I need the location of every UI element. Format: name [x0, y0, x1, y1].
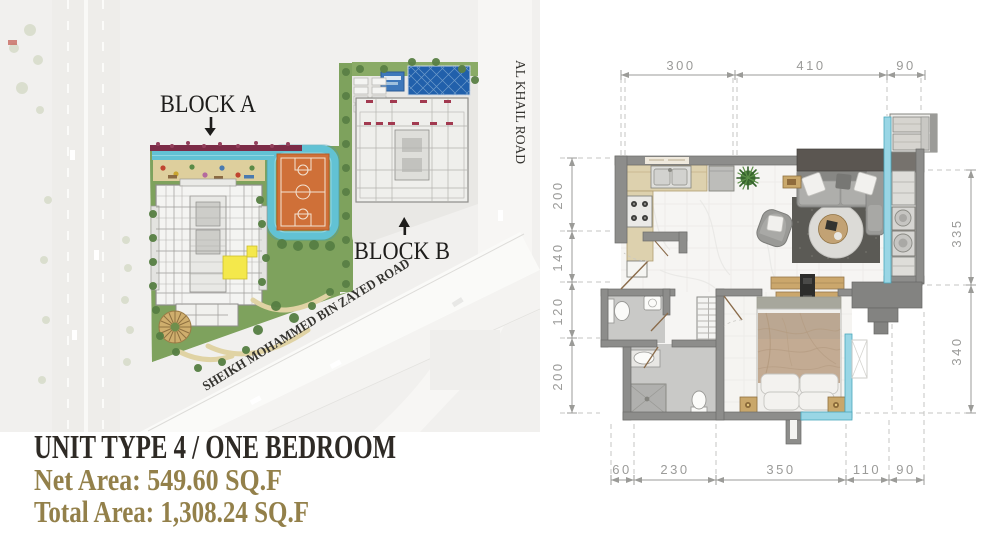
svg-text:200: 200 [550, 361, 565, 390]
svg-text:350: 350 [766, 462, 795, 477]
svg-text:AL KHAIL ROAD: AL KHAIL ROAD [513, 60, 528, 164]
svg-text:230: 230 [660, 462, 689, 477]
svg-text:410: 410 [796, 58, 825, 73]
svg-text:340: 340 [949, 336, 964, 365]
svg-text:UNIT TYPE 4 / ONE BEDROOM: UNIT TYPE 4 / ONE BEDROOM [34, 429, 396, 466]
svg-text:335: 335 [949, 218, 964, 247]
svg-text:90: 90 [896, 462, 915, 477]
svg-text:300: 300 [666, 58, 695, 73]
svg-text:140: 140 [550, 242, 565, 271]
svg-text:120: 120 [550, 296, 565, 325]
svg-text:Total Area: 1,308.24 SQ.F: Total Area: 1,308.24 SQ.F [34, 494, 309, 529]
svg-text:60: 60 [612, 462, 631, 477]
svg-text:BLOCK A: BLOCK A [160, 91, 256, 118]
svg-text:Net Area: 549.60 SQ.F: Net Area: 549.60 SQ.F [34, 462, 282, 497]
svg-text:200: 200 [550, 180, 565, 209]
svg-text:90: 90 [896, 58, 915, 73]
svg-text:110: 110 [853, 462, 881, 477]
